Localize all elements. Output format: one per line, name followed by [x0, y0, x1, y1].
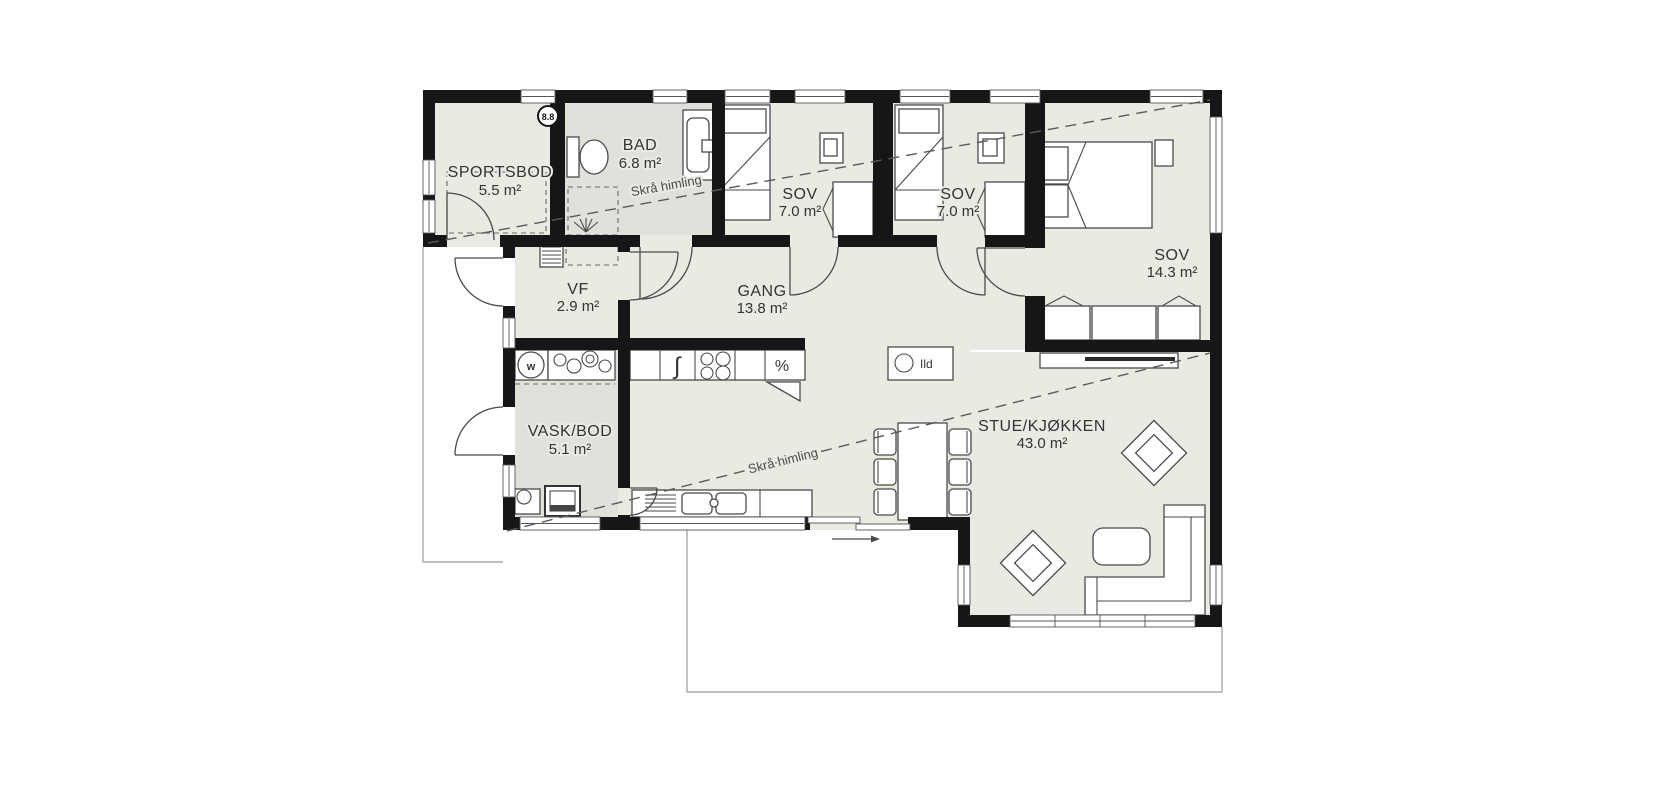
svg-text:13.8 m²: 13.8 m²	[737, 300, 788, 317]
dining-table	[874, 423, 971, 520]
dryer-icon	[545, 486, 580, 516]
fireplace-box: Ild	[888, 347, 953, 380]
desk-1	[820, 133, 843, 163]
svg-text:6.8 m²: 6.8 m²	[619, 155, 662, 172]
door-entry-vask	[455, 407, 503, 455]
entry-porch-outline	[423, 247, 503, 562]
svg-text:5.1 m²: 5.1 m²	[549, 441, 592, 458]
svg-text:BAD: BAD	[623, 137, 657, 154]
toilet-icon	[567, 137, 608, 177]
washer-letter: w	[526, 361, 536, 373]
bathtub-icon	[683, 110, 713, 180]
door-entry-vf	[455, 258, 503, 306]
svg-text:14.3 m²: 14.3 m²	[1147, 264, 1198, 281]
svg-text:SOV: SOV	[782, 186, 817, 203]
svg-text:7.0 m²: 7.0 m²	[779, 203, 822, 220]
kitchen-sink-counter	[632, 490, 812, 517]
label-gang: GANG 13.8 m²	[737, 283, 788, 317]
svg-text:GANG: GANG	[737, 283, 786, 300]
svg-text:VF: VF	[567, 281, 588, 298]
fireplace-label: Ild	[920, 357, 933, 371]
floor-drain-icon	[515, 489, 540, 514]
svg-text:5.5 m²: 5.5 m²	[479, 182, 522, 199]
cooler-symbol: %	[775, 358, 789, 375]
svg-text:SOV: SOV	[1154, 247, 1189, 264]
bed-single-1	[720, 105, 770, 220]
washing-machine-icon: w	[515, 350, 548, 380]
desk-2	[978, 133, 1004, 163]
height-badge-text: 8.8	[542, 112, 555, 122]
svg-text:43.0 m²: 43.0 m²	[1017, 435, 1068, 452]
svg-text:SPORTSBOD: SPORTSBOD	[448, 164, 553, 181]
svg-text:7.0 m²: 7.0 m²	[937, 203, 980, 220]
dishwasher-symbol: ∫	[672, 353, 682, 380]
label-bad: BAD 6.8 m²	[619, 137, 662, 172]
svg-text:SOV: SOV	[940, 186, 975, 203]
svg-text:2.9 m²: 2.9 m²	[557, 298, 600, 315]
svg-text:VASK/BOD: VASK/BOD	[528, 423, 613, 440]
height-badge: 8.8	[538, 106, 558, 126]
floor-plan: w ∫	[0, 0, 1670, 800]
svg-text:STUE/KJØKKEN: STUE/KJØKKEN	[978, 418, 1106, 435]
laundry-sink-icon	[548, 350, 615, 380]
slide-arrow-icon	[832, 536, 880, 543]
label-sov2: SOV 7.0 m²	[937, 186, 980, 220]
coffee-table	[1093, 528, 1150, 565]
label-sov1: SOV 7.0 m²	[779, 186, 822, 220]
